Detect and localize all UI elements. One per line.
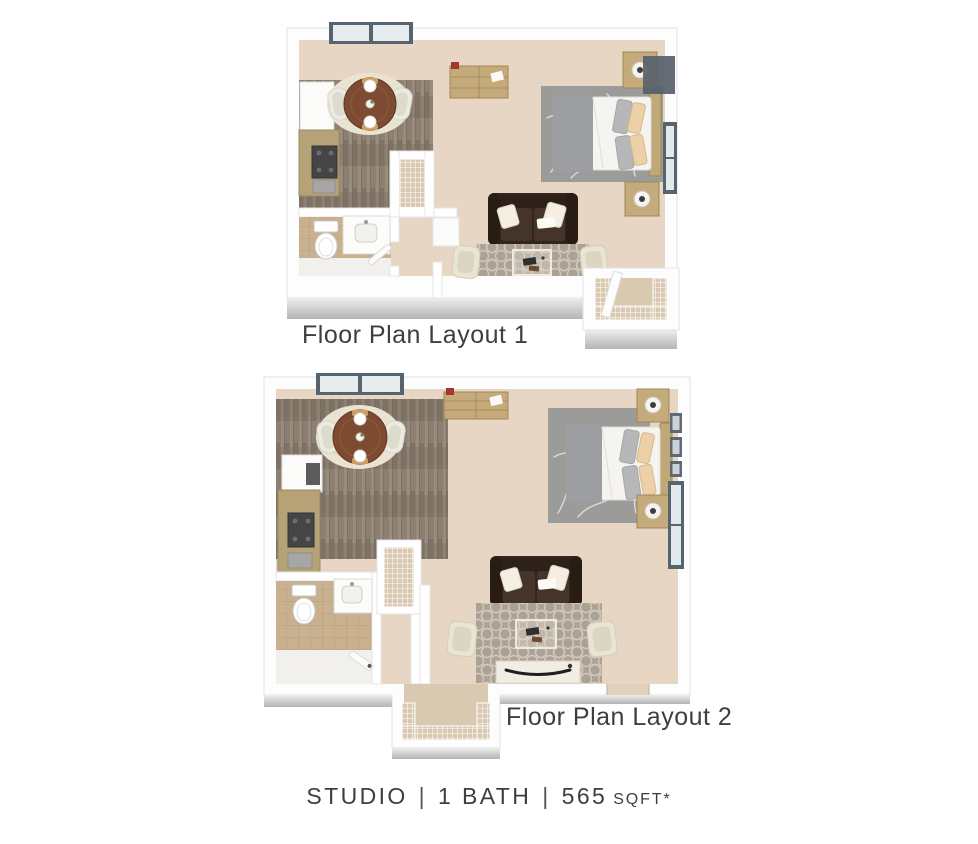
window-right-icon xyxy=(668,481,684,569)
utility-cabinet xyxy=(433,218,459,246)
nightstand-bottom xyxy=(625,182,659,216)
media-console xyxy=(496,661,580,683)
bed xyxy=(553,92,661,176)
interior-wall xyxy=(425,151,434,217)
entry-closet xyxy=(402,684,490,740)
interior-wall xyxy=(390,266,399,276)
layout-2-label: Floor Plan Layout 2 xyxy=(506,703,732,731)
wire-shelving xyxy=(402,726,490,740)
interior-wall xyxy=(420,585,430,684)
toilet xyxy=(314,221,338,259)
sofa xyxy=(488,193,578,245)
vanity-sink xyxy=(334,579,372,613)
bed xyxy=(566,423,672,505)
accent-chair-left xyxy=(446,621,477,658)
hall-closet xyxy=(390,151,434,217)
wire-shelving xyxy=(384,547,414,607)
window-top-icon xyxy=(316,373,404,395)
toilet xyxy=(292,585,316,624)
kitchen xyxy=(278,455,322,575)
unit-type: STUDIO xyxy=(306,783,407,809)
entry-closet xyxy=(583,268,679,330)
picture-frames xyxy=(670,413,682,477)
area-value: 565 xyxy=(562,783,608,809)
coffee-table xyxy=(513,250,551,275)
nightstand-top xyxy=(637,389,669,422)
sofa xyxy=(490,556,582,606)
unit-summary: STUDIO|1 BATH|565SQFT* xyxy=(0,783,978,810)
window-right-icon xyxy=(663,122,677,194)
nightstand-bottom xyxy=(637,495,669,528)
hall-closet xyxy=(377,540,421,614)
bathroom xyxy=(276,572,381,684)
wall-face-shadow xyxy=(287,298,585,319)
interior-wall xyxy=(433,262,442,298)
accent-chair-left xyxy=(451,245,480,280)
wall-face-shadow xyxy=(392,748,500,759)
entry-opening xyxy=(607,684,649,695)
dresser xyxy=(444,388,508,419)
summary-divider: | xyxy=(542,783,550,809)
dresser xyxy=(450,62,508,98)
floor-plan-page: Floor Plan Layout 1 xyxy=(0,0,978,844)
accent-chair-right xyxy=(586,621,617,658)
coffee-table xyxy=(516,620,556,648)
floor-plan-svg-1 xyxy=(285,22,680,352)
wall-art xyxy=(643,56,675,94)
kitchen-sink xyxy=(288,553,312,568)
layout-1-label: Floor Plan Layout 1 xyxy=(302,321,528,349)
stove xyxy=(312,146,337,178)
wall-face-shadow xyxy=(585,330,677,349)
floor-plan-image-layout-1 xyxy=(285,22,680,352)
bath-count: 1 BATH xyxy=(438,783,531,809)
window-top-icon xyxy=(329,22,413,44)
stove xyxy=(288,513,314,547)
interior-wall xyxy=(390,151,399,217)
summary-divider: | xyxy=(419,783,427,809)
kitchen-sink xyxy=(313,180,335,193)
wall-face-shadow xyxy=(264,695,392,707)
area-unit: SQFT* xyxy=(613,791,671,808)
wire-shelving xyxy=(399,159,425,208)
